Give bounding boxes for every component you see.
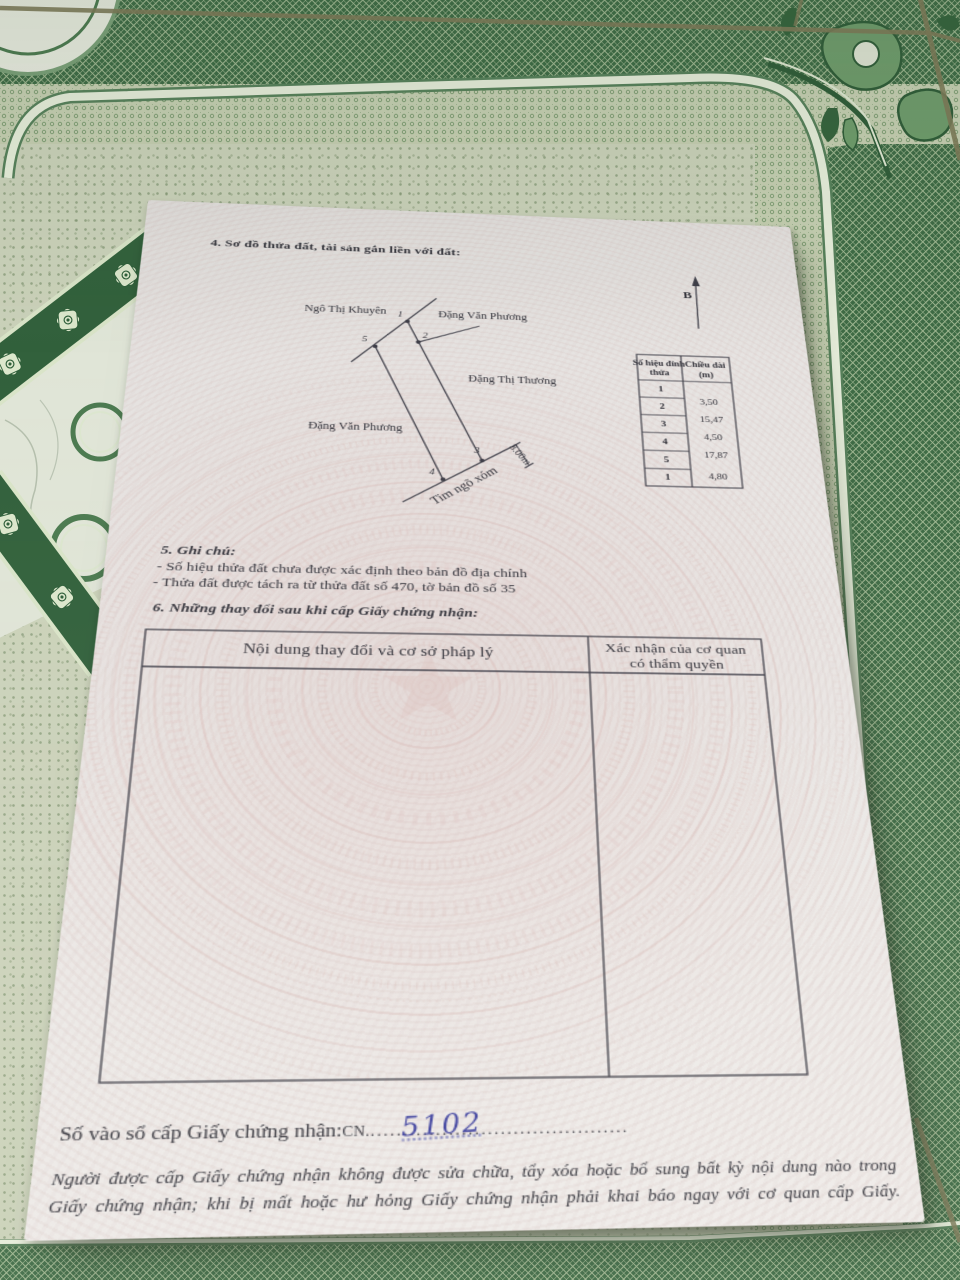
vertex-label-4: 4 xyxy=(429,467,435,476)
north-label: B xyxy=(683,289,693,301)
vertex-row-id: 1 xyxy=(658,385,664,394)
vertex-label-5: 5 xyxy=(362,335,368,344)
segment-length: 3,50 xyxy=(699,398,718,407)
segment-length: 17,87 xyxy=(704,451,729,461)
vertex-row-id: 4 xyxy=(662,437,668,446)
vertex-row-id: 5 xyxy=(663,455,669,464)
handwritten-registry-number: 5102 xyxy=(400,1107,483,1143)
registry-prefix: CN. xyxy=(342,1124,371,1140)
changes-table-col2-header-b: có thẩm quyền xyxy=(629,656,724,673)
segment-length: 4,50 xyxy=(704,433,723,442)
vertex-table-header-col1b: thửa xyxy=(649,369,669,377)
segment-length: 4,80 xyxy=(708,472,728,482)
north-arrow-icon xyxy=(691,276,700,286)
vertex-row-id: 1 xyxy=(665,473,671,482)
changes-table-col2-header: Xác nhận của cơ quan xyxy=(604,640,746,657)
vertex-row-id: 3 xyxy=(661,419,667,428)
section5-title: 5. Ghi chú: xyxy=(160,543,236,559)
changes-table-grid xyxy=(99,629,807,1082)
segment-length: 15,47 xyxy=(699,415,723,424)
vertex-table-header-col2b: (m) xyxy=(698,372,713,380)
vertex-label-1: 1 xyxy=(398,310,403,318)
vertex-row-id: 2 xyxy=(659,402,665,411)
vertex-table-header-col2: Chiều dài xyxy=(685,361,726,370)
vertex-label-2: 2 xyxy=(423,331,428,340)
vertex-label-3: 3 xyxy=(474,446,480,455)
registry-label: Số vào sổ cấp Giấy chứng nhận: xyxy=(58,1119,342,1145)
certificate-page: 4. Sơ đồ thửa đất, tài sản gắn liền với … xyxy=(24,200,925,1241)
plot-diagram-lines xyxy=(24,200,925,1241)
